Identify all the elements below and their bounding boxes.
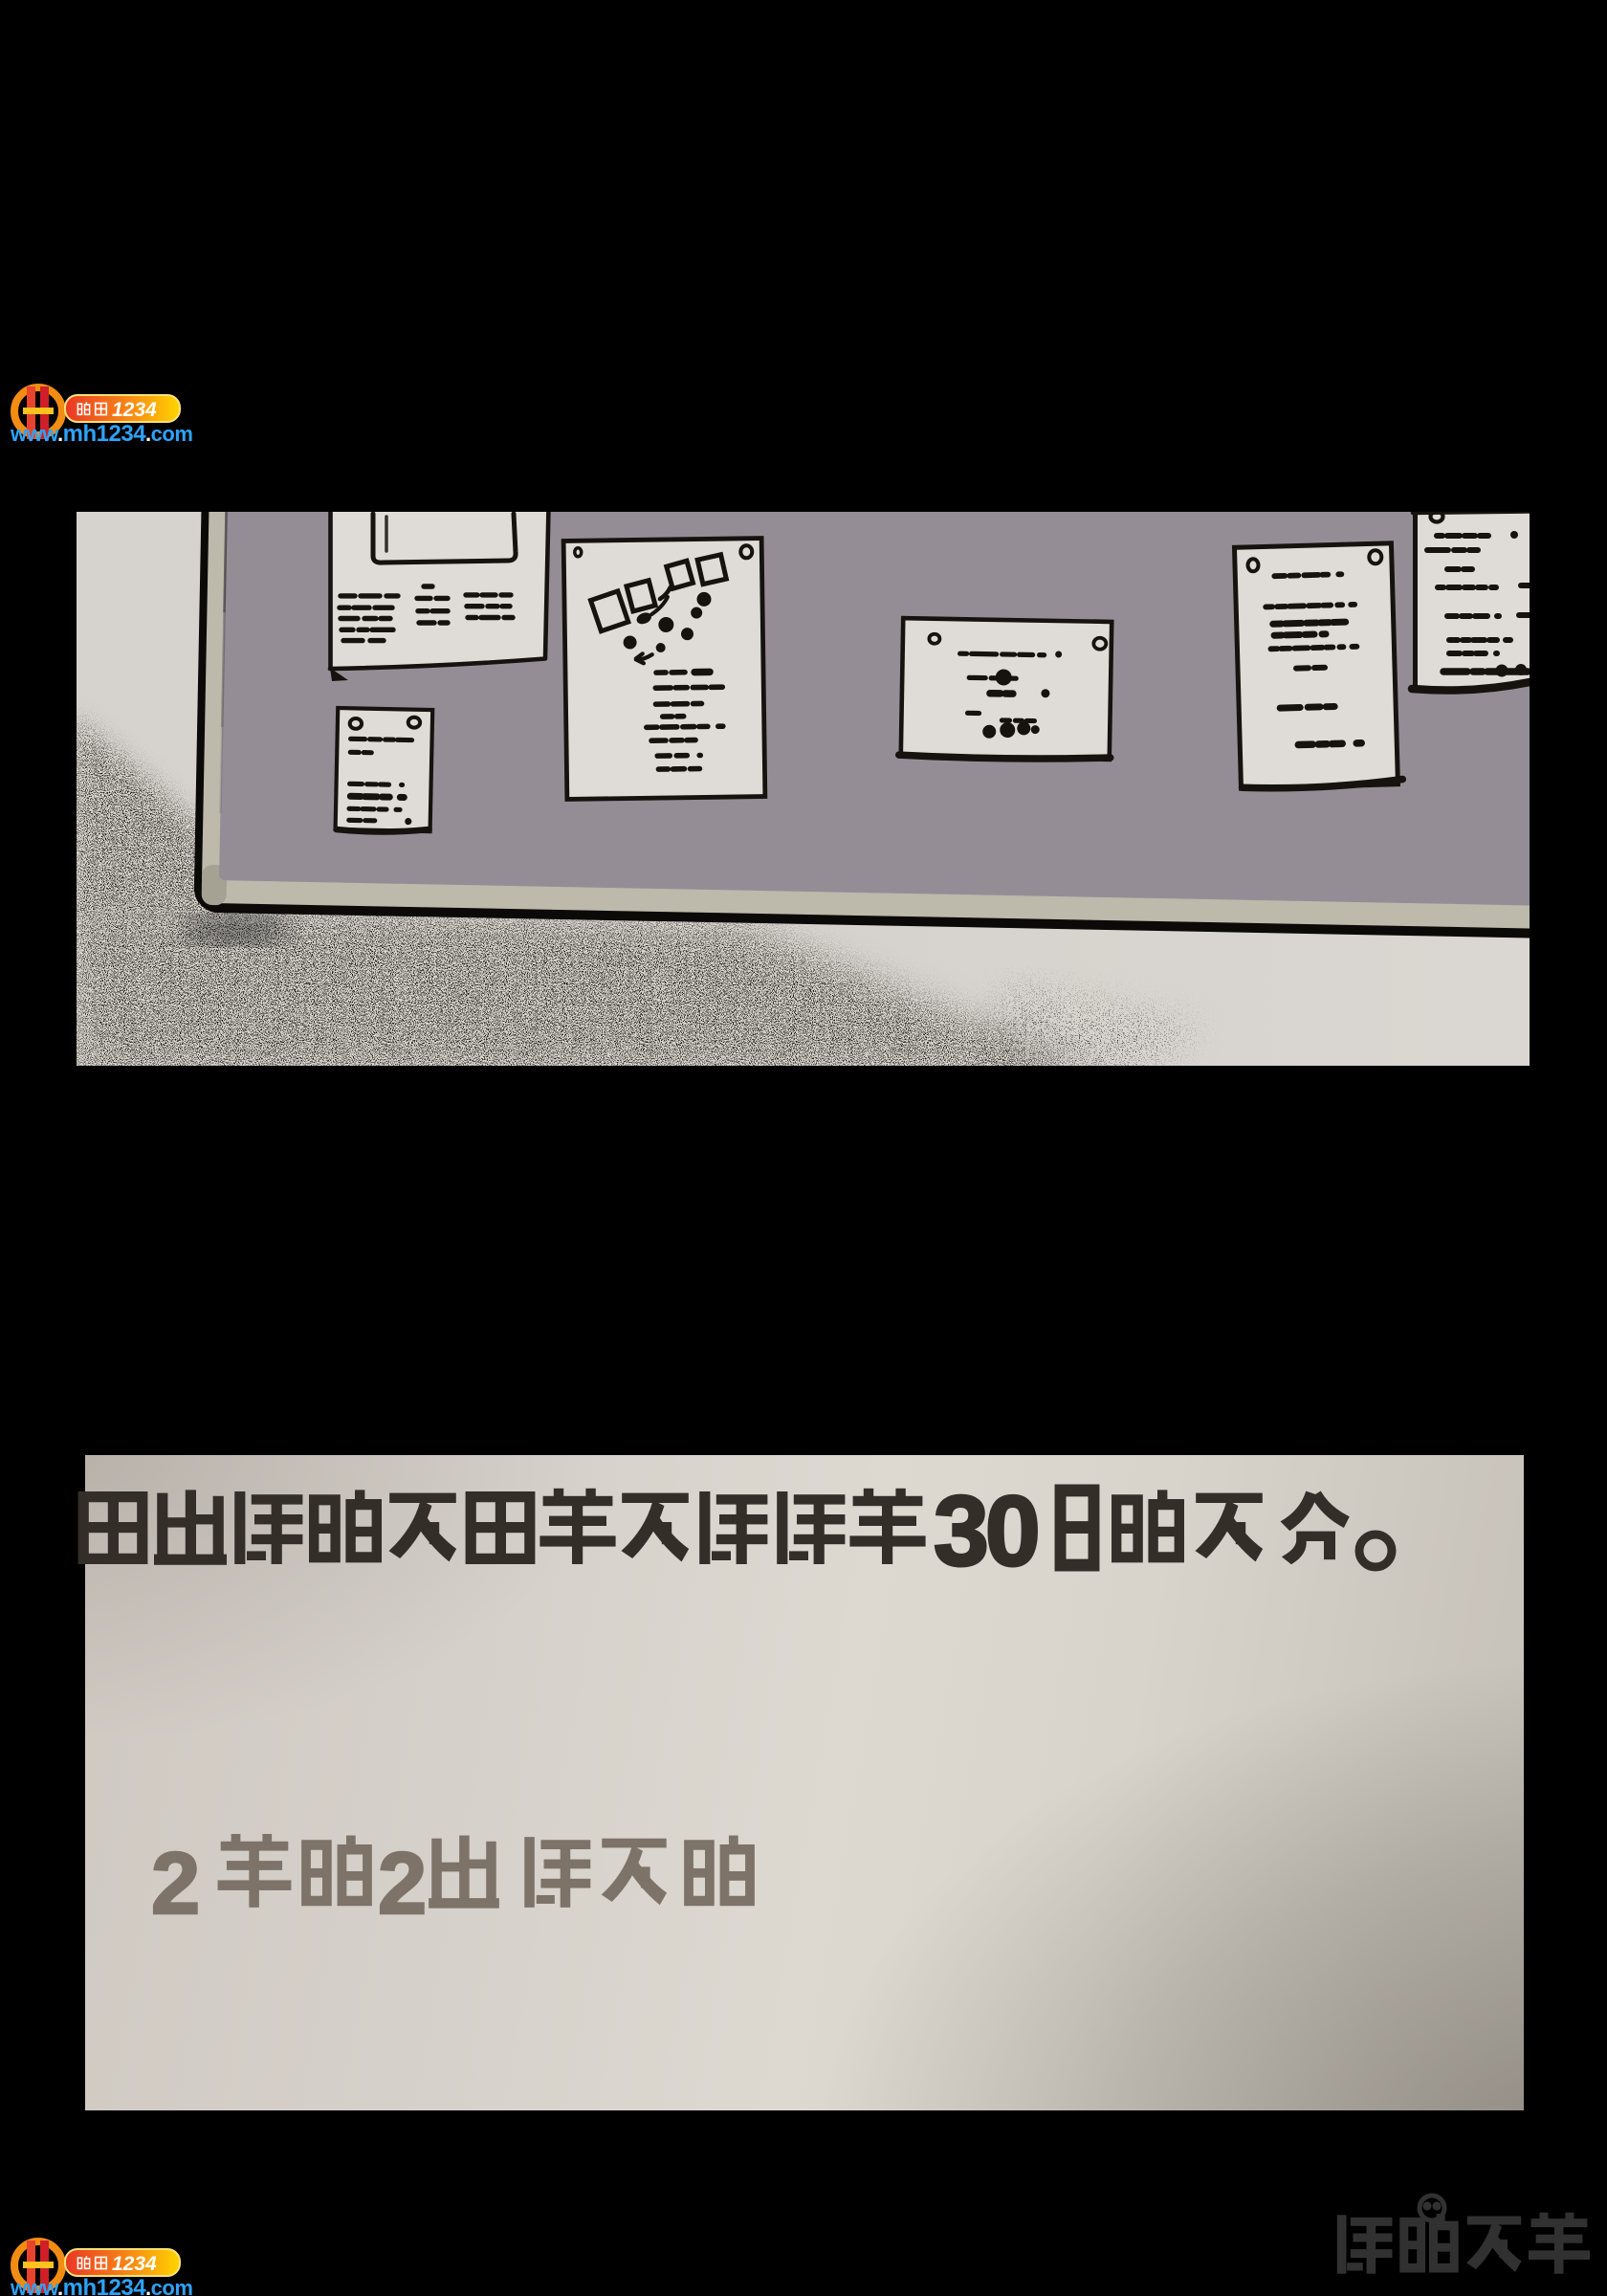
svg-text:2: 2 <box>151 1835 200 1932</box>
svg-text:30: 30 <box>934 1476 1037 1587</box>
svg-text:2: 2 <box>378 1835 427 1932</box>
